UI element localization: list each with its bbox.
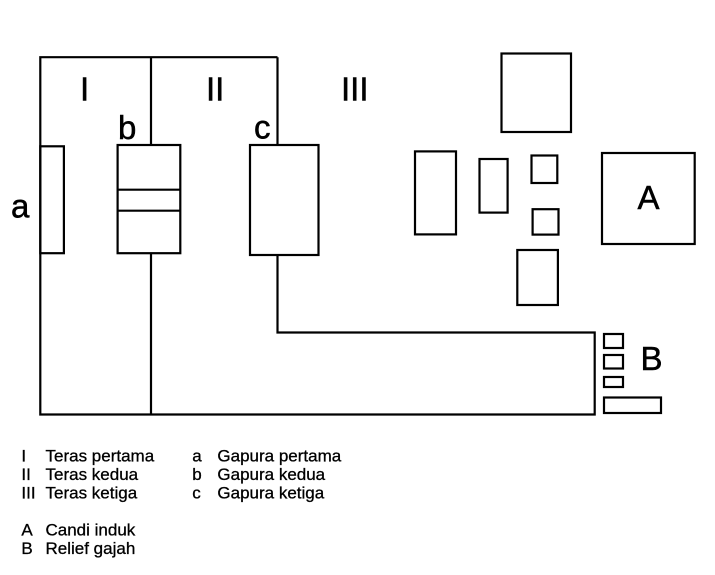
svg-text:I: I: [80, 71, 89, 108]
svg-text:Teras ketiga: Teras ketiga: [46, 484, 138, 503]
svg-text:II: II: [206, 71, 224, 108]
svg-text:Gapura pertama: Gapura pertama: [217, 447, 341, 466]
svg-text:c: c: [192, 484, 201, 503]
svg-text:b: b: [118, 109, 136, 146]
svg-text:Gapura kedua: Gapura kedua: [217, 465, 325, 484]
svg-text:a: a: [11, 187, 30, 224]
svg-text:Candi induk: Candi induk: [46, 520, 136, 539]
svg-text:B: B: [641, 340, 663, 377]
svg-text:a: a: [192, 447, 202, 466]
svg-text:Teras pertama: Teras pertama: [46, 447, 155, 466]
svg-text:c: c: [254, 109, 271, 146]
svg-text:A: A: [638, 179, 660, 216]
svg-text:Relief gajah: Relief gajah: [46, 539, 136, 558]
svg-text:I: I: [21, 447, 26, 466]
svg-text:III: III: [341, 71, 369, 108]
svg-text:B: B: [21, 539, 32, 558]
svg-text:II: II: [21, 465, 30, 484]
svg-text:III: III: [21, 484, 35, 503]
svg-text:Teras kedua: Teras kedua: [46, 465, 139, 484]
svg-text:Gapura ketiga: Gapura ketiga: [217, 484, 324, 503]
svg-text:A: A: [21, 520, 33, 539]
svg-text:b: b: [192, 465, 201, 484]
